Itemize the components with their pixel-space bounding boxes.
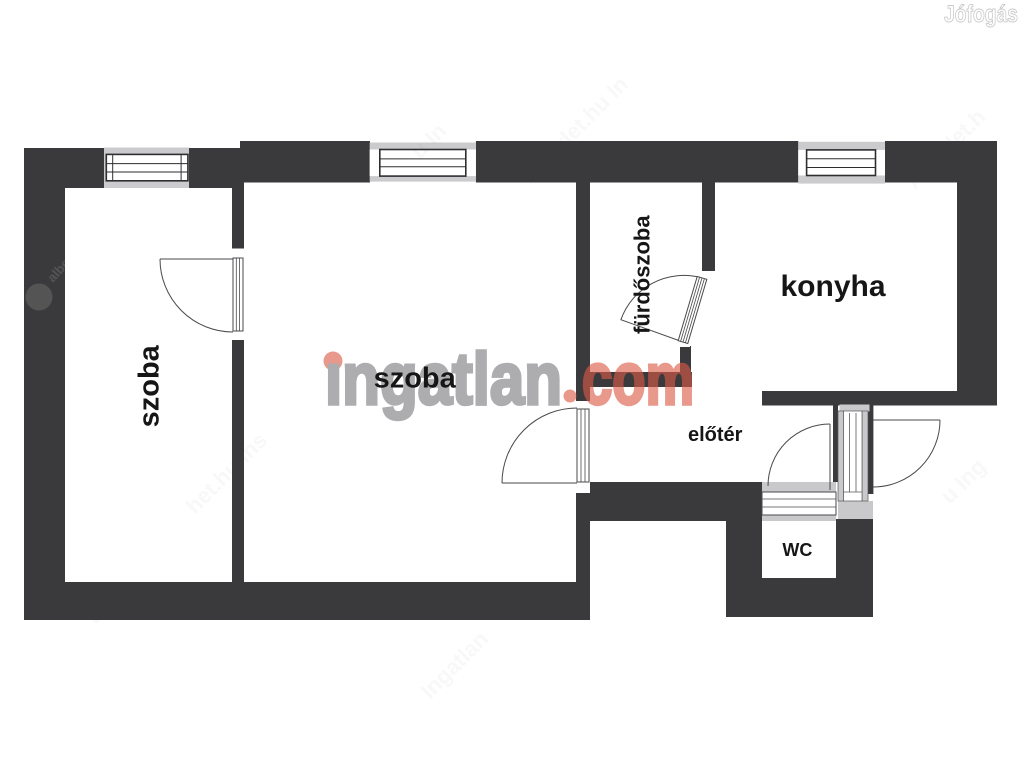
svg-text:szoba: szoba xyxy=(374,363,457,395)
svg-text:WC: WC xyxy=(782,540,812,560)
svg-text:szoba: szoba xyxy=(134,344,166,427)
svg-text:konyha: konyha xyxy=(780,270,885,303)
svg-text:előtér: előtér xyxy=(688,424,743,446)
svg-text:com: com xyxy=(582,339,694,420)
svg-text:fürdőszoba: fürdőszoba xyxy=(630,215,655,334)
svg-text:Jófogás: Jófogás xyxy=(944,1,1018,28)
